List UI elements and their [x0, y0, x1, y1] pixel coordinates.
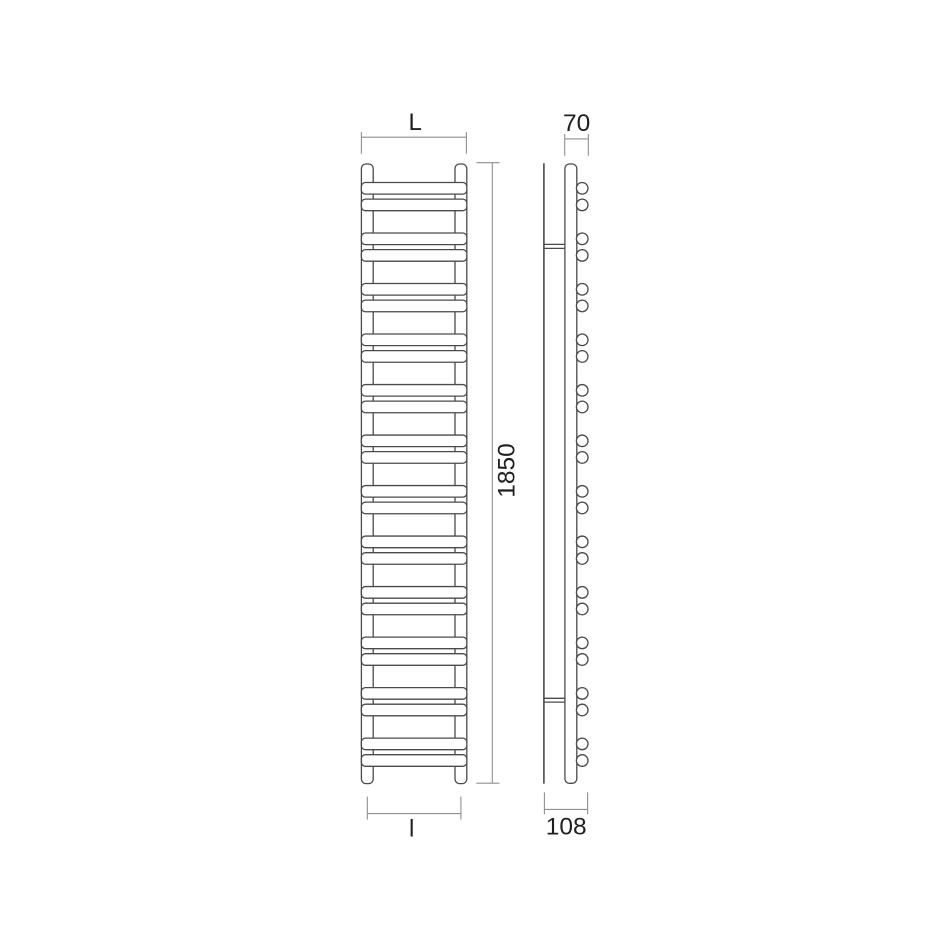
svg-text:l: l — [409, 815, 414, 842]
svg-text:108: 108 — [546, 813, 587, 840]
svg-text:L: L — [409, 109, 422, 136]
svg-text:70: 70 — [563, 110, 590, 137]
svg-text:1850: 1850 — [494, 443, 521, 498]
